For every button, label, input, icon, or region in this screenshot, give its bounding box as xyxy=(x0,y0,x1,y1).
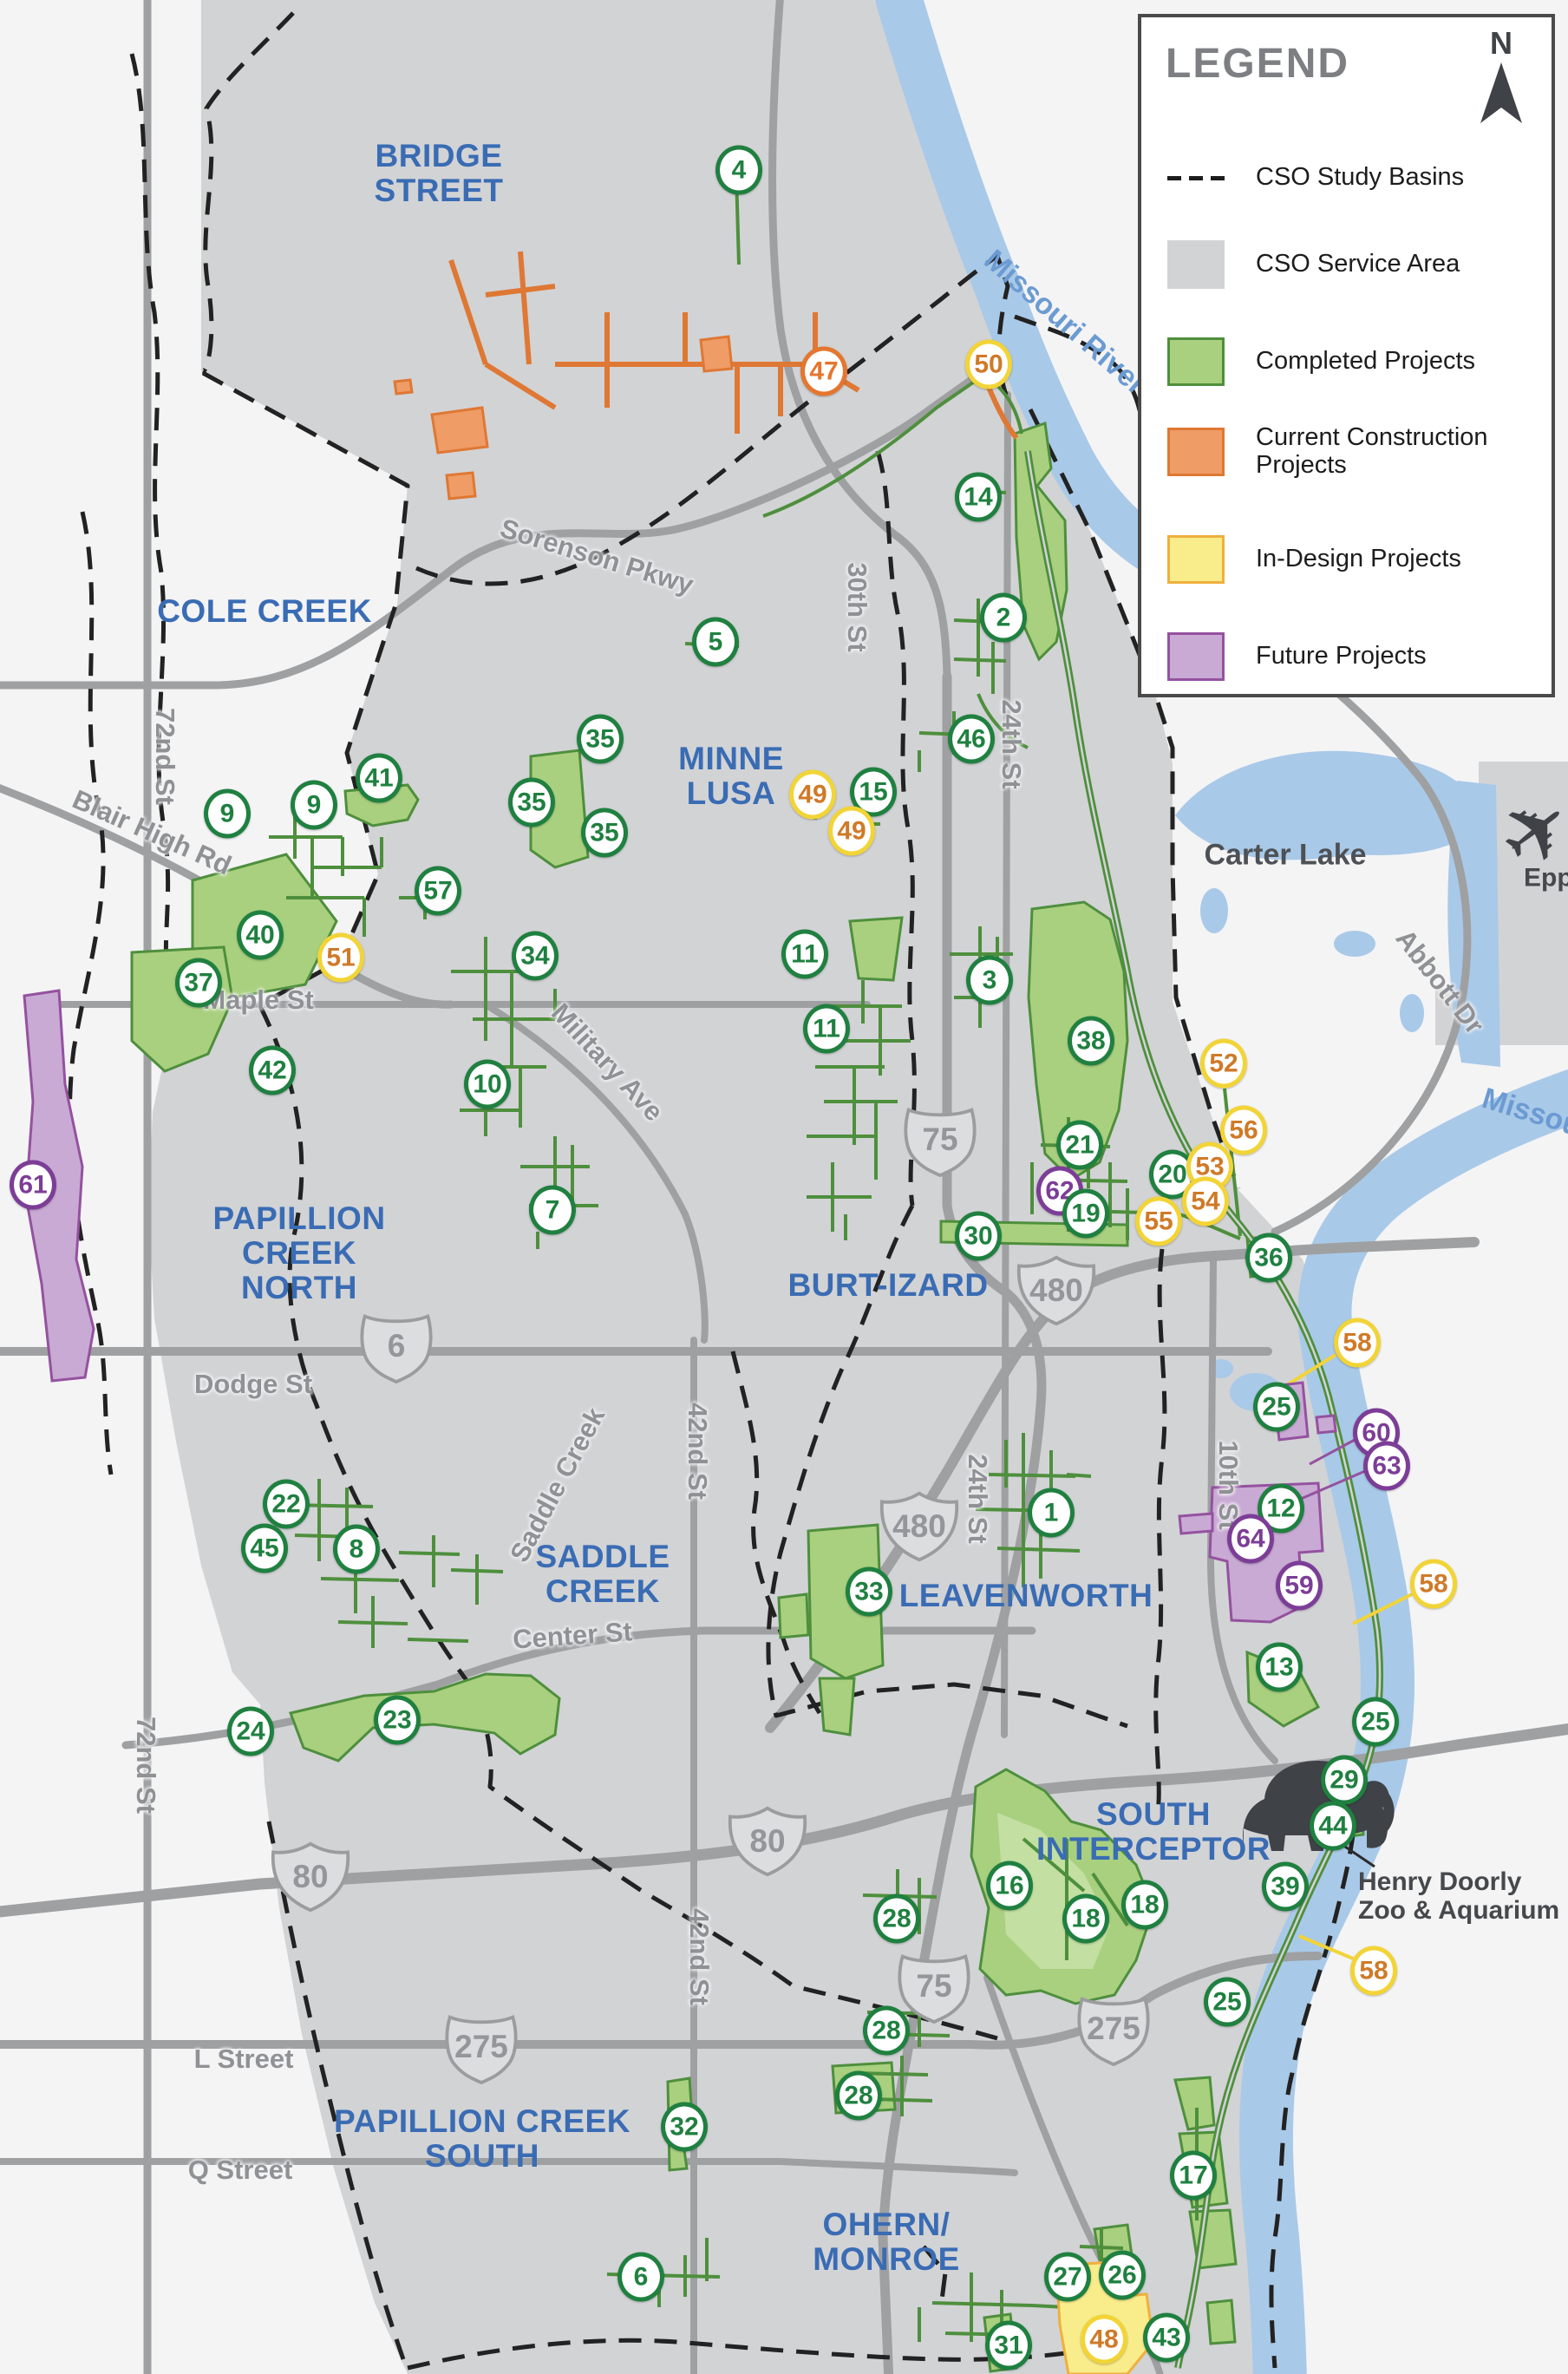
project-marker-35-completed: 35 xyxy=(577,715,624,764)
project-marker-35-completed: 35 xyxy=(508,778,555,827)
project-marker-40-completed: 40 xyxy=(237,911,284,960)
project-marker-49-indesign: 49 xyxy=(789,770,836,820)
legend-item-current-construction-projects: Current Construction Projects xyxy=(1167,422,1532,482)
project-marker-36-completed: 36 xyxy=(1245,1233,1292,1283)
marker-number: 20 xyxy=(1158,1160,1186,1189)
highway-shield-us-275: 275 xyxy=(440,2010,523,2084)
marker-number: 31 xyxy=(994,2331,1022,2360)
marker-number: 36 xyxy=(1254,1243,1283,1272)
marker-number: 50 xyxy=(974,350,1003,379)
project-marker-28-completed: 28 xyxy=(835,2071,882,2121)
marker-number: 18 xyxy=(1071,1904,1100,1933)
legend-item-cso-service-area: CSO Service Area xyxy=(1167,234,1532,295)
shield-number: 275 xyxy=(454,2029,508,2065)
marker-number: 32 xyxy=(670,2112,698,2142)
project-marker-31-completed: 31 xyxy=(985,2321,1032,2371)
project-marker-63-future: 63 xyxy=(1363,1442,1410,1491)
project-marker-47-construction: 47 xyxy=(800,347,847,396)
marker-number: 11 xyxy=(813,1014,840,1043)
marker-number: 5 xyxy=(709,627,723,657)
project-marker-9-completed: 9 xyxy=(204,789,251,839)
project-marker-30-completed: 30 xyxy=(955,1212,1002,1261)
shield-number: 480 xyxy=(1029,1272,1083,1309)
project-marker-13-completed: 13 xyxy=(1256,1643,1303,1692)
cso-projects-map: ✈ LEGEND N CSO Study BasinsCSO Service A… xyxy=(0,0,1568,2374)
marker-number: 35 xyxy=(585,724,614,754)
marker-number: 7 xyxy=(546,1195,560,1225)
project-marker-4-completed: 4 xyxy=(715,146,762,195)
marker-number: 30 xyxy=(964,1221,992,1251)
highway-shield-interstate-480: 480 xyxy=(1015,1253,1098,1328)
shield-number: 6 xyxy=(388,1328,406,1364)
project-marker-37-completed: 37 xyxy=(175,958,222,1008)
marker-number: 11 xyxy=(791,939,819,969)
project-marker-43-completed: 43 xyxy=(1143,2313,1190,2363)
project-marker-56-indesign: 56 xyxy=(1220,1106,1267,1155)
marker-number: 37 xyxy=(184,968,212,997)
project-marker-26-completed: 26 xyxy=(1099,2251,1146,2300)
project-marker-59-future: 59 xyxy=(1276,1561,1323,1611)
project-marker-35-completed: 35 xyxy=(581,808,628,858)
marker-number: 28 xyxy=(844,2081,872,2110)
marker-number: 40 xyxy=(245,920,274,950)
marker-number: 29 xyxy=(1330,1765,1358,1795)
marker-number: 61 xyxy=(18,1170,47,1200)
marker-number: 33 xyxy=(854,1577,883,1606)
legend-item-completed-projects: Completed Projects xyxy=(1167,331,1532,392)
highway-shield-us-275: 275 xyxy=(1072,1991,1155,2066)
marker-number: 58 xyxy=(1419,1569,1447,1599)
legend-item-in-design-projects: In-Design Projects xyxy=(1167,529,1532,590)
highway-shield-us-75: 75 xyxy=(898,1102,982,1177)
marker-number: 59 xyxy=(1284,1571,1313,1600)
marker-number: 9 xyxy=(220,799,235,828)
marker-number: 47 xyxy=(809,356,838,386)
marker-number: 19 xyxy=(1071,1199,1100,1228)
project-marker-51-indesign: 51 xyxy=(317,933,364,983)
project-marker-14-completed: 14 xyxy=(955,473,1002,522)
project-marker-48-indesign: 48 xyxy=(1081,2315,1127,2364)
dashed-line-swatch xyxy=(1167,175,1225,180)
marker-number: 58 xyxy=(1359,1956,1388,1985)
north-arrow-icon xyxy=(1473,59,1529,128)
marker-number: 21 xyxy=(1065,1130,1094,1160)
marker-number: 38 xyxy=(1076,1026,1105,1056)
project-marker-27-completed: 27 xyxy=(1044,2253,1091,2302)
project-marker-44-completed: 44 xyxy=(1310,1802,1356,1851)
shield-number: 75 xyxy=(922,1122,957,1158)
project-marker-49-indesign: 49 xyxy=(828,807,875,856)
marker-number: 18 xyxy=(1130,1890,1159,1919)
legend-panel: LEGEND N CSO Study BasinsCSO Service Are… xyxy=(1138,14,1555,697)
orange-swatch xyxy=(1167,428,1225,476)
marker-number: 45 xyxy=(250,1534,278,1563)
marker-number: 46 xyxy=(957,724,985,754)
marker-number: 64 xyxy=(1236,1524,1264,1553)
project-marker-6-completed: 6 xyxy=(617,2253,664,2302)
project-marker-28-completed: 28 xyxy=(863,2006,910,2056)
shield-number: 480 xyxy=(892,1508,946,1545)
marker-number: 8 xyxy=(350,1534,364,1564)
marker-number: 58 xyxy=(1343,1328,1371,1357)
marker-number: 17 xyxy=(1179,2161,1207,2190)
legend-item-label: Future Projects xyxy=(1256,643,1427,670)
project-marker-25-completed: 25 xyxy=(1204,1978,1251,2027)
shield-number: 75 xyxy=(916,1968,951,2004)
green-swatch xyxy=(1167,337,1225,386)
marker-number: 55 xyxy=(1144,1207,1173,1236)
highway-shield-interstate-80: 80 xyxy=(269,1840,352,1914)
legend-item-label: Current Construction Projects xyxy=(1256,424,1488,480)
marker-number: 49 xyxy=(837,816,866,846)
marker-number: 25 xyxy=(1262,1392,1290,1422)
project-marker-32-completed: 32 xyxy=(661,2103,708,2152)
project-marker-7-completed: 7 xyxy=(529,1186,576,1235)
marker-number: 14 xyxy=(964,482,992,512)
marker-number: 2 xyxy=(996,603,1011,632)
marker-number: 16 xyxy=(995,1871,1023,1900)
project-marker-54-indesign: 54 xyxy=(1182,1177,1229,1226)
marker-number: 44 xyxy=(1318,1811,1347,1841)
project-marker-46-completed: 46 xyxy=(948,715,995,764)
project-marker-22-completed: 22 xyxy=(263,1480,310,1529)
project-marker-55-indesign: 55 xyxy=(1135,1197,1182,1246)
marker-number: 6 xyxy=(634,2262,649,2292)
marker-number: 12 xyxy=(1266,1494,1295,1523)
highway-shield-interstate-480: 480 xyxy=(878,1489,961,1564)
marker-number: 27 xyxy=(1053,2262,1081,2292)
legend-title: LEGEND xyxy=(1166,40,1349,88)
project-marker-57-completed: 57 xyxy=(415,867,461,916)
gray-swatch xyxy=(1167,240,1225,289)
north-label: N xyxy=(1473,28,1529,59)
yellow-swatch xyxy=(1167,535,1225,584)
project-marker-42-completed: 42 xyxy=(249,1046,296,1095)
marker-number: 49 xyxy=(798,780,826,809)
highway-shield-us-6: 6 xyxy=(355,1309,438,1383)
project-marker-2-completed: 2 xyxy=(980,593,1027,643)
marker-number: 57 xyxy=(423,876,452,906)
shield-number: 275 xyxy=(1087,2011,1140,2047)
marker-number: 15 xyxy=(859,777,887,807)
marker-number: 25 xyxy=(1212,1987,1241,2017)
marker-number: 39 xyxy=(1271,1872,1299,1901)
project-marker-38-completed: 38 xyxy=(1068,1017,1114,1066)
project-marker-45-completed: 45 xyxy=(241,1524,288,1573)
project-marker-34-completed: 34 xyxy=(512,932,559,981)
project-marker-52-indesign: 52 xyxy=(1200,1039,1247,1089)
project-marker-58-indesign: 58 xyxy=(1410,1560,1457,1609)
highway-shield-us-75: 75 xyxy=(892,1949,976,2024)
marker-number: 35 xyxy=(517,788,546,817)
shield-number: 80 xyxy=(749,1823,785,1860)
legend-item-future-projects: Future Projects xyxy=(1167,626,1532,687)
marker-number: 35 xyxy=(590,818,618,847)
project-marker-8-completed: 8 xyxy=(333,1525,380,1574)
marker-number: 26 xyxy=(1107,2260,1136,2290)
marker-number: 43 xyxy=(1152,2323,1180,2352)
marker-number: 41 xyxy=(364,763,393,793)
project-marker-9-completed: 9 xyxy=(291,781,337,830)
marker-number: 63 xyxy=(1372,1451,1401,1481)
marker-number: 9 xyxy=(307,790,322,820)
north-compass: N xyxy=(1473,28,1529,133)
highway-shield-interstate-80: 80 xyxy=(726,1804,809,1879)
project-marker-25-completed: 25 xyxy=(1253,1383,1300,1432)
marker-number: 28 xyxy=(882,1904,911,1933)
legend-item-cso-study-basins: CSO Study Basins xyxy=(1167,147,1532,208)
project-marker-61-future: 61 xyxy=(10,1161,56,1210)
project-marker-29-completed: 29 xyxy=(1321,1756,1368,1805)
marker-number: 48 xyxy=(1089,2325,1118,2354)
marker-number: 42 xyxy=(258,1056,286,1085)
purple-swatch xyxy=(1167,632,1225,681)
marker-number: 52 xyxy=(1209,1049,1238,1078)
legend-item-label: CSO Study Basins xyxy=(1256,164,1464,192)
legend-item-label: Completed Projects xyxy=(1256,348,1475,376)
marker-number: 3 xyxy=(983,965,997,995)
marker-number: 13 xyxy=(1264,1652,1293,1682)
project-marker-1-completed: 1 xyxy=(1028,1488,1075,1538)
project-marker-18-completed: 18 xyxy=(1121,1880,1168,1930)
project-marker-28-completed: 28 xyxy=(873,1894,920,1944)
project-marker-17-completed: 17 xyxy=(1170,2151,1217,2201)
marker-number: 56 xyxy=(1229,1115,1258,1145)
project-marker-16-completed: 16 xyxy=(986,1861,1033,1911)
marker-number: 10 xyxy=(473,1069,501,1099)
project-marker-41-completed: 41 xyxy=(356,754,402,803)
marker-number: 28 xyxy=(872,2016,900,2045)
shield-number: 80 xyxy=(292,1859,328,1895)
project-marker-3-completed: 3 xyxy=(966,956,1013,1005)
project-marker-24-completed: 24 xyxy=(227,1707,274,1756)
marker-number: 54 xyxy=(1191,1187,1219,1216)
project-marker-23-completed: 23 xyxy=(374,1696,421,1745)
project-marker-11-completed: 11 xyxy=(781,930,828,979)
project-marker-64-future: 64 xyxy=(1227,1514,1274,1564)
legend-item-label: In-Design Projects xyxy=(1256,546,1461,573)
project-marker-5-completed: 5 xyxy=(692,618,739,667)
project-marker-10-completed: 10 xyxy=(464,1060,511,1109)
marker-number: 23 xyxy=(382,1705,411,1735)
legend-item-label: CSO Service Area xyxy=(1256,251,1460,278)
project-marker-21-completed: 21 xyxy=(1056,1121,1103,1170)
marker-number: 24 xyxy=(236,1717,265,1746)
marker-number: 34 xyxy=(520,941,549,971)
project-marker-25-completed: 25 xyxy=(1352,1697,1399,1747)
project-marker-58-indesign: 58 xyxy=(1334,1318,1381,1368)
marker-number: 22 xyxy=(271,1489,300,1519)
project-marker-33-completed: 33 xyxy=(846,1567,892,1617)
marker-number: 51 xyxy=(326,943,355,972)
marker-number: 1 xyxy=(1044,1498,1059,1527)
project-marker-58-indesign: 58 xyxy=(1350,1946,1397,1996)
marker-number: 25 xyxy=(1361,1707,1389,1736)
project-marker-18-completed: 18 xyxy=(1062,1894,1109,1944)
project-marker-19-completed: 19 xyxy=(1062,1189,1109,1239)
project-marker-11-completed: 11 xyxy=(803,1004,850,1054)
project-marker-39-completed: 39 xyxy=(1262,1862,1309,1912)
marker-number: 4 xyxy=(732,155,747,185)
project-marker-50-indesign: 50 xyxy=(965,340,1012,389)
